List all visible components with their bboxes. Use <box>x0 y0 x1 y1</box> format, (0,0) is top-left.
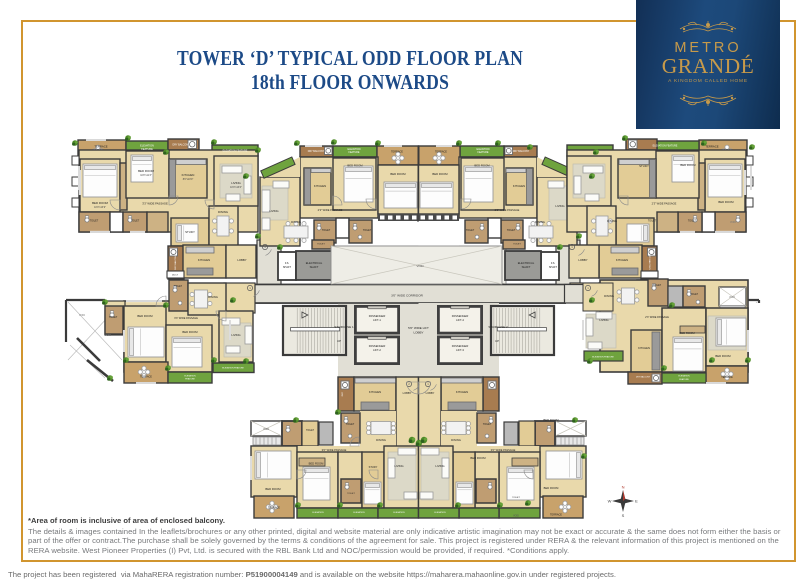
svg-text:LIFT-2: LIFT-2 <box>373 348 381 352</box>
svg-text:BED ROOM: BED ROOM <box>137 314 153 318</box>
svg-text:BED ROOM: BED ROOM <box>138 169 154 173</box>
svg-text:LIFT-1: LIFT-1 <box>373 318 381 322</box>
svg-text:SHAFT: SHAFT <box>549 266 558 269</box>
svg-text:10'0"x13'9": 10'0"x13'9" <box>94 206 106 209</box>
svg-text:DINING: DINING <box>208 295 218 299</box>
svg-text:BED ROOM: BED ROOM <box>680 163 696 167</box>
svg-text:KITCHEN: KITCHEN <box>198 258 210 262</box>
svg-text:BED ROOM: BED ROOM <box>544 486 559 490</box>
svg-text:TERRACE: TERRACE <box>140 376 152 379</box>
svg-text:TOILET: TOILET <box>347 493 355 495</box>
svg-text:TOILET: TOILET <box>306 430 315 432</box>
svg-text:LIFT-4: LIFT-4 <box>456 318 464 322</box>
svg-text:ELEVATION: ELEVATION <box>312 511 324 514</box>
svg-text:TOILET: TOILET <box>90 220 99 223</box>
svg-text:BED ROOM: BED ROOM <box>543 418 559 422</box>
svg-text:DINING: DINING <box>291 220 301 224</box>
svg-text:TERRACE: TERRACE <box>391 151 403 154</box>
svg-text:FEATURE: FEATURE <box>478 151 489 154</box>
svg-text:LIVING: LIVING <box>435 464 444 468</box>
svg-text:TOILET: TOILET <box>317 244 325 246</box>
svg-text:3'3" WIDE PASSAGE: 3'3" WIDE PASSAGE <box>174 317 198 320</box>
svg-text:KITCHEN: KITCHEN <box>456 390 468 394</box>
svg-text:LIVING: LIVING <box>599 318 608 322</box>
svg-text:TOILET: TOILET <box>483 423 492 426</box>
svg-text:TERRACE: TERRACE <box>94 145 107 149</box>
svg-text:LIFT-3: LIFT-3 <box>456 348 464 352</box>
svg-text:LIVING: LIVING <box>269 209 278 213</box>
svg-text:STAIRCASE 1: STAIRCASE 1 <box>334 325 354 329</box>
svg-text:BED ROOM: BED ROOM <box>470 456 486 460</box>
svg-text:STAIRCASE 2: STAIRCASE 2 <box>488 325 508 329</box>
svg-text:TOILET: TOILET <box>653 285 662 287</box>
svg-text:UP: UP <box>337 339 341 343</box>
svg-text:LOBBY: LOBBY <box>578 258 587 262</box>
svg-text:BED ROOM: BED ROOM <box>432 172 448 176</box>
svg-text:TOILET: TOILET <box>512 497 520 499</box>
svg-text:STUDY: STUDY <box>639 164 649 168</box>
svg-text:10'0"x11'3": 10'0"x11'3" <box>140 174 152 177</box>
svg-text:FEATURE: FEATURE <box>185 378 195 381</box>
svg-text:PASSENGER: PASSENGER <box>369 314 386 318</box>
svg-text:BED ROOM: BED ROOM <box>715 354 731 358</box>
svg-text:BED ROOM: BED ROOM <box>347 164 363 168</box>
svg-text:LIVING: LIVING <box>394 464 403 468</box>
svg-text:STUDY: STUDY <box>185 230 195 234</box>
svg-text:TERRACE: TERRACE <box>721 376 733 379</box>
svg-text:DINING: DINING <box>376 438 386 442</box>
svg-text:DRY BALCONY: DRY BALCONY <box>174 254 177 270</box>
svg-text:VOID: VOID <box>730 221 736 224</box>
svg-text:TERRACE: TERRACE <box>268 507 280 510</box>
svg-text:ELEVATION FEATURE: ELEVATION FEATURE <box>592 356 614 359</box>
svg-text:DINING: DINING <box>218 210 229 214</box>
svg-text:BED ROOM: BED ROOM <box>679 331 695 335</box>
svg-text:TOILET: TOILET <box>513 244 521 246</box>
svg-text:LIVING: LIVING <box>231 333 240 337</box>
svg-text:5'0" WIDE LIFT: 5'0" WIDE LIFT <box>408 326 429 330</box>
svg-text:DRY BALCONY: DRY BALCONY <box>648 254 651 270</box>
svg-text:TOILET: TOILET <box>690 294 699 296</box>
svg-text:ELEVATION FEATURE: ELEVATION FEATURE <box>653 145 678 148</box>
svg-text:DINING: DINING <box>451 438 461 442</box>
svg-text:TOILET: TOILET <box>322 229 331 232</box>
svg-text:TOILET: TOILET <box>688 220 697 223</box>
svg-text:VOID: VOID <box>105 334 111 337</box>
svg-text:DINING: DINING <box>607 219 617 223</box>
svg-text:TOILET: TOILET <box>466 229 475 232</box>
svg-text:DRY BALCONY: DRY BALCONY <box>308 150 325 153</box>
svg-text:KITCHEN: KITCHEN <box>182 173 195 177</box>
svg-text:LIVING: LIVING <box>231 181 241 185</box>
svg-text:2'3" WIDE PASSAGE: 2'3" WIDE PASSAGE <box>652 202 677 206</box>
svg-text:TERRACE: TERRACE <box>705 145 718 149</box>
svg-text:VOID: VOID <box>263 428 269 431</box>
svg-text:FEATURE: FEATURE <box>679 378 689 381</box>
svg-text:TOILET: TOILET <box>648 220 657 223</box>
svg-text:10'0"x13'0": 10'0"x13'0" <box>230 186 242 189</box>
svg-text:TOILET: TOILET <box>174 286 183 288</box>
svg-text:TERRACE: TERRACE <box>435 151 447 154</box>
svg-text:TOILET: TOILET <box>363 229 372 232</box>
svg-text:BED ROOM: BED ROOM <box>474 164 490 168</box>
svg-text:PASSENGER: PASSENGER <box>452 344 469 348</box>
svg-text:LIVING: LIVING <box>555 204 564 208</box>
svg-text:DRY BALCONY: DRY BALCONY <box>172 143 189 146</box>
svg-text:STUDY: STUDY <box>369 465 378 469</box>
svg-text:KITCHEN: KITCHEN <box>513 184 525 188</box>
svg-text:DINING: DINING <box>535 220 545 224</box>
svg-text:VOID: VOID <box>79 314 85 317</box>
svg-text:DRY: DRY <box>342 391 344 396</box>
svg-text:PASSENGER: PASSENGER <box>369 344 386 348</box>
svg-text:UP: UP <box>495 339 499 343</box>
svg-text:LOBBY: LOBBY <box>413 331 423 335</box>
svg-text:ELECTRICAL: ELECTRICAL <box>306 261 323 265</box>
svg-text:2'3" WIDE PASSAGE: 2'3" WIDE PASSAGE <box>318 208 343 212</box>
svg-text:8'0"x10'0": 8'0"x10'0" <box>183 178 194 181</box>
svg-text:KITCHEN: KITCHEN <box>314 184 326 188</box>
svg-text:SHAFT: SHAFT <box>283 266 292 269</box>
svg-text:VOID: VOID <box>729 296 735 299</box>
svg-text:DRY BALCONY: DRY BALCONY <box>513 150 530 153</box>
svg-text:TOILET: TOILET <box>346 423 355 426</box>
svg-text:3'0" WIDE PASSAGE: 3'0" WIDE PASSAGE <box>322 448 347 452</box>
svg-text:ELECTRICAL: ELECTRICAL <box>518 261 535 265</box>
svg-text:BED ROOM: BED ROOM <box>718 200 734 204</box>
svg-text:TOILET: TOILET <box>507 229 516 232</box>
svg-text:3'3" WIDE PASSAGE: 3'3" WIDE PASSAGE <box>142 202 168 206</box>
svg-text:KITCHEN: KITCHEN <box>638 346 650 350</box>
svg-text:SHAFT: SHAFT <box>310 265 319 269</box>
svg-text:W: W <box>608 499 612 504</box>
svg-text:ELEVATION: ELEVATION <box>353 511 365 514</box>
svg-text:ELEVATION FEATURE: ELEVATION FEATURE <box>223 150 248 153</box>
svg-text:ELEVATION: ELEVATION <box>393 511 405 514</box>
svg-text:DUCT: DUCT <box>172 275 179 277</box>
svg-text:KITCHEN: KITCHEN <box>616 258 628 262</box>
svg-text:BED ROOM: BED ROOM <box>92 201 108 205</box>
svg-text:LOBBY: LOBBY <box>237 258 246 262</box>
svg-text:TOILET: TOILET <box>131 220 140 223</box>
svg-text:3'0" WIDE CORRIDOR: 3'0" WIDE CORRIDOR <box>391 293 424 297</box>
svg-text:F.S.: F.S. <box>285 262 290 265</box>
svg-text:DINING: DINING <box>604 294 614 298</box>
svg-text:VOID: VOID <box>416 264 424 268</box>
svg-text:KITCHEN: KITCHEN <box>369 390 381 394</box>
svg-text:ELEVATION FEATURE: ELEVATION FEATURE <box>222 367 244 370</box>
svg-text:2'3" WIDE PASSAGE: 2'3" WIDE PASSAGE <box>495 208 520 212</box>
svg-text:LOBBY: LOBBY <box>426 391 435 395</box>
svg-text:SHAFT: SHAFT <box>522 265 531 269</box>
svg-text:ELEVATION: ELEVATION <box>678 375 690 378</box>
svg-text:BED ROOM: BED ROOM <box>182 330 198 334</box>
svg-text:BED ROOM: BED ROOM <box>390 172 406 176</box>
svg-text:2'3" WIDE PASSAGE: 2'3" WIDE PASSAGE <box>645 316 669 319</box>
svg-text:BED ROOM: BED ROOM <box>309 462 324 466</box>
svg-text:LOBBY: LOBBY <box>403 391 412 395</box>
svg-text:3'0" WIDE PASSAGE: 3'0" WIDE PASSAGE <box>491 448 516 452</box>
svg-text:ELEVATION: ELEVATION <box>434 511 446 514</box>
svg-text:FEATURE: FEATURE <box>349 151 360 154</box>
svg-text:E: E <box>635 499 638 504</box>
svg-text:PASSENGER: PASSENGER <box>452 314 469 318</box>
svg-text:BED ROOM: BED ROOM <box>265 487 281 491</box>
svg-text:TOILET: TOILET <box>109 316 118 319</box>
svg-text:ELEVATION: ELEVATION <box>184 375 196 378</box>
svg-text:DRY BALCONY: DRY BALCONY <box>636 376 651 379</box>
svg-text:FEATURE: FEATURE <box>141 148 153 151</box>
svg-text:F.S.: F.S. <box>551 262 556 265</box>
svg-text:N: N <box>622 485 625 490</box>
